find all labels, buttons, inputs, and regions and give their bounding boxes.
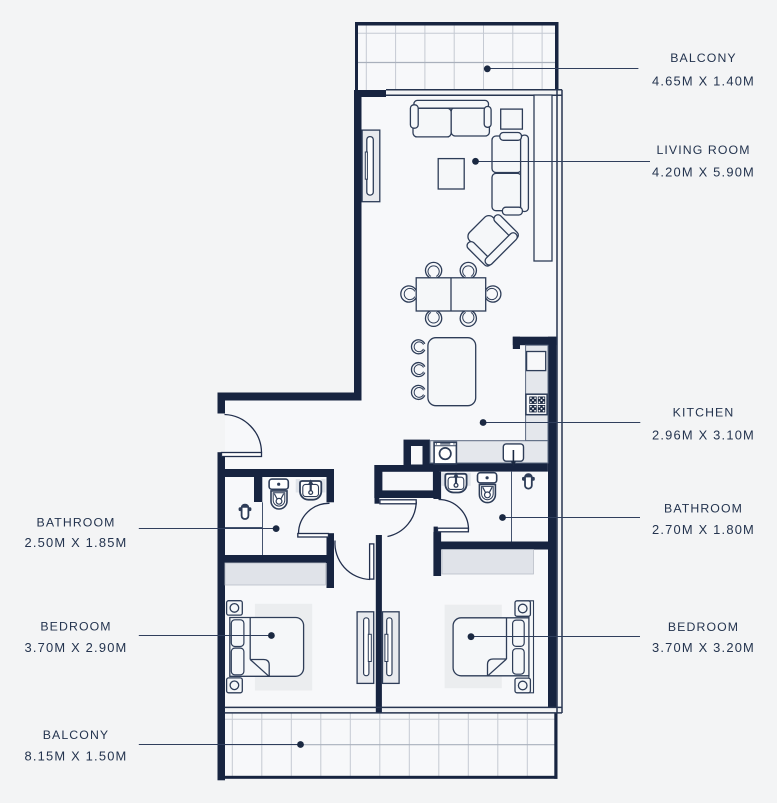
svg-text:4.65M X 1.40M: 4.65M X 1.40M bbox=[652, 74, 755, 89]
svg-text:2.70M X 1.80M: 2.70M X 1.80M bbox=[652, 522, 755, 537]
svg-text:BALCONY: BALCONY bbox=[670, 51, 736, 65]
svg-text:BEDROOM: BEDROOM bbox=[40, 620, 111, 634]
svg-text:BEDROOM: BEDROOM bbox=[668, 620, 739, 634]
svg-text:8.15M X 1.50M: 8.15M X 1.50M bbox=[24, 749, 127, 764]
svg-text:4.20M X 5.90M: 4.20M X 5.90M bbox=[652, 164, 755, 179]
svg-text:3.70M X 2.90M: 3.70M X 2.90M bbox=[24, 640, 127, 655]
svg-text:2.50M X 1.85M: 2.50M X 1.85M bbox=[24, 535, 127, 550]
svg-text:KITCHEN: KITCHEN bbox=[673, 406, 735, 420]
svg-text:2.96M X 3.10M: 2.96M X 3.10M bbox=[652, 428, 755, 443]
svg-text:BALCONY: BALCONY bbox=[43, 728, 109, 742]
svg-text:LIVING ROOM: LIVING ROOM bbox=[656, 143, 750, 157]
svg-text:BATHROOM: BATHROOM bbox=[664, 502, 743, 516]
svg-text:3.70M X 3.20M: 3.70M X 3.20M bbox=[652, 640, 755, 655]
svg-text:BATHROOM: BATHROOM bbox=[37, 515, 116, 529]
